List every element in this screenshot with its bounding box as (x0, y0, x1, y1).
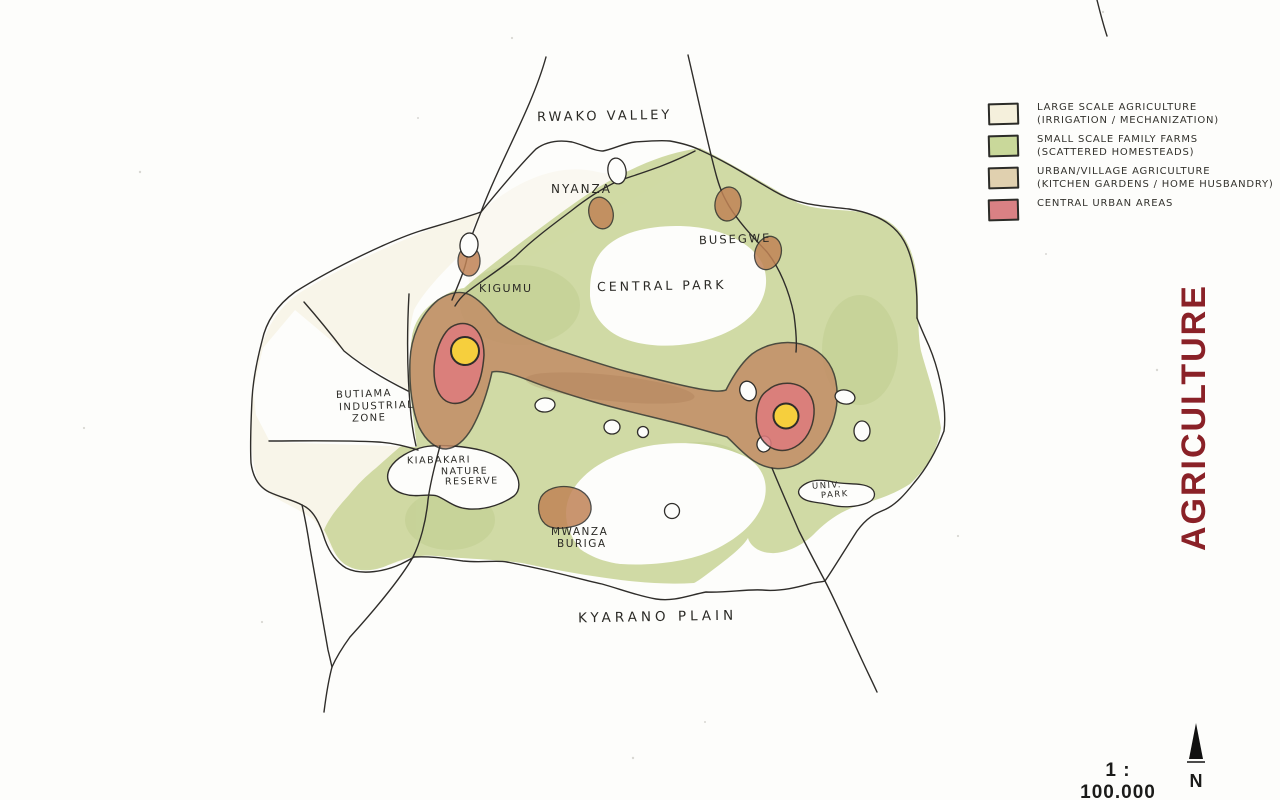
label-university-park-line-2: PARK (821, 489, 850, 501)
legend-label-small-scale: SMALL SCALE FAMILY FARMS (1037, 134, 1198, 147)
legend-label-urban-village: URBAN/VILLAGE AGRICULTURE (1037, 166, 1274, 179)
legend-item-central-urban: CENTRAL URBAN AREAS (988, 198, 1280, 221)
clearing-south (665, 504, 680, 519)
label-nyanza: NYANZA (551, 182, 612, 196)
page-title: AGRICULTURE (1175, 315, 1211, 551)
label-butiama-line-3: ZONE (352, 412, 387, 424)
label-mwanza-buriga-line-2: BURIGA (557, 538, 607, 550)
label-central-park: CENTRAL PARK (597, 277, 727, 294)
stray-stroke-top-right (1097, 0, 1107, 36)
legend-swatch-central-urban (988, 199, 1020, 222)
city-centre-node-west (451, 337, 479, 365)
legend-sublabel-large-scale: (IRRIGATION / MECHANIZATION) (1037, 115, 1219, 128)
north-indicator: N (1184, 720, 1208, 800)
label-kigumu: KIGUMU (479, 282, 533, 295)
label-busegwe: BUSEGWE (699, 231, 772, 248)
north-label: N (1184, 771, 1208, 792)
clearing-east-2 (854, 421, 870, 441)
legend-swatch-small-scale (988, 135, 1020, 158)
blob-mwanza-buriga (539, 486, 592, 528)
legend-label-central-urban: CENTRAL URBAN AREAS (1037, 198, 1173, 211)
map-page: RWAKO VALLEY NYANZA BUSEGWE CENTRAL PARK… (0, 0, 1280, 800)
label-rwako-valley: RWAKO VALLEY (537, 108, 673, 125)
label-butiama-line-1: BUTIAMA (336, 388, 392, 401)
clearing-mid-3 (638, 427, 649, 438)
legend-sublabel-small-scale: (SCATTERED HOMESTEADS) (1037, 147, 1198, 160)
legend-sublabel-urban-village: (KITCHEN GARDENS / HOME HUSBANDRY) (1037, 179, 1274, 192)
legend-swatch-urban-village (988, 167, 1020, 190)
clearing-mid-2 (604, 420, 620, 434)
legend-item-urban-village: URBAN/VILLAGE AGRICULTURE (KITCHEN GARDE… (988, 166, 1280, 191)
city-centre-node-east (774, 404, 799, 429)
legend-label-large-scale: LARGE SCALE AGRICULTURE (1037, 102, 1219, 115)
legend-item-small-scale: SMALL SCALE FAMILY FARMS (SCATTERED HOME… (988, 134, 1280, 159)
label-kiabakari-line-3: RESERVE (445, 476, 499, 488)
label-mwanza-buriga-line-1: MWANZA (551, 526, 608, 538)
label-kyarano-plain: KYARANO PLAIN (578, 608, 737, 627)
label-kiabakari-line-1: KIABAKARI (407, 454, 471, 466)
scale-text: 1 : 100.000 (1066, 760, 1170, 800)
legend: LARGE SCALE AGRICULTURE (IRRIGATION / ME… (988, 102, 1280, 228)
legend-item-large-scale: LARGE SCALE AGRICULTURE (IRRIGATION / ME… (988, 102, 1280, 127)
north-arrow-icon (1184, 720, 1208, 766)
legend-swatch-large-scale (988, 103, 1020, 126)
